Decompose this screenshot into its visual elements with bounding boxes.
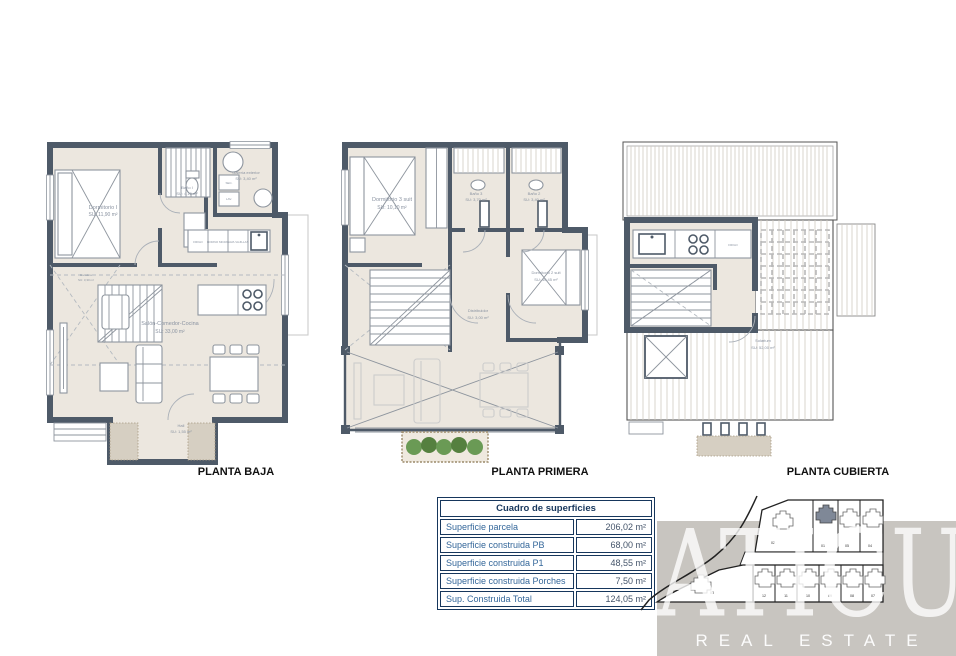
room-solarium-area: SU: 52,00 m²: [751, 345, 775, 350]
tv-unit-icon: [60, 323, 67, 393]
kitchen-counter: FRIGO HORNO MICRO LAVA VAJILLAS: [188, 230, 270, 252]
brand-watermark: ATICÚ REAL ESTATE: [657, 521, 956, 656]
roof-area: [623, 142, 837, 220]
pergola-posts: [629, 422, 771, 456]
title-planta-primera: PLANTA PRIMERA: [460, 466, 620, 478]
room-solarium-name: Solarium: [755, 338, 771, 343]
floorplan-planta-cubierta: FRIGO Solarium SU: 52,00 m²: [615, 138, 895, 458]
table-row-label: Superficie construida P1: [440, 555, 574, 571]
side-terrace: [837, 224, 875, 316]
table-row-label: Superficie parcela: [440, 519, 574, 535]
label-lav: LAV.: [226, 197, 232, 201]
door-panel: [538, 201, 547, 227]
room-bano2-name: Baño 2: [528, 191, 541, 196]
kitchen-island: [198, 285, 266, 315]
label-horno: HORNO MICRO: [207, 240, 230, 244]
closet-icon: [426, 148, 447, 228]
room-escalera-area: SU: 3,30 m²: [78, 278, 94, 282]
room-escalera-name: Escalera: [80, 273, 92, 277]
table-row-label: Superficie construida Porches: [440, 573, 574, 589]
armchair-icon: [102, 295, 129, 329]
room-dormitorio3-name: Dormitorio 3 suit: [372, 197, 413, 203]
room-bano3-name: Baño 3: [470, 191, 483, 196]
room-distribuidor-area: SU: 3,00 m²: [467, 315, 489, 320]
room-galeria-name: Galería exterior: [232, 170, 260, 175]
door-panel: [480, 201, 489, 227]
room-galeria-area: SU: 3,40 m²: [235, 176, 257, 181]
table-row-label: Superficie construida PB: [440, 537, 574, 553]
room-dormitorio2-name: Dormitorio 2 suit: [531, 270, 561, 275]
room-bano1-name: Baño I: [181, 185, 193, 190]
room-distribuidor-name: Distribuidor: [468, 308, 489, 313]
kitchen-counter: FRIGO: [633, 230, 751, 258]
room-dormitorio1-name: Dormitorio I: [89, 205, 118, 211]
room-bano3-area: SU: 3,70 m²: [465, 197, 487, 202]
dining-set-icon: [210, 345, 259, 403]
floorplan-planta-primera: Dormitorio 3 suit SU: 10,10 m² Baño 3 SU…: [330, 135, 605, 465]
floorplan-planta-baja: SEC. LAV. FRIGO HORNO MICRO LAVA VAJILLA…: [40, 135, 315, 470]
stairs-icon: [631, 270, 711, 326]
label-sec: SEC.: [225, 181, 232, 185]
table-row-label: Sup. Construida Total: [440, 591, 574, 607]
room-bano1-area: SU: 4,10 m²: [176, 191, 198, 196]
planter-icon: [402, 432, 488, 462]
sofa-icon: [136, 345, 162, 403]
room-bano2-area: SU: 3,40 m²: [523, 197, 545, 202]
label-lavavajillas: LAVA VAJILLAS: [227, 240, 248, 244]
room-salon-area: SU: 33,00 m²: [155, 329, 185, 335]
room-dormitorio2-area: SU: 10,45 m²: [534, 277, 558, 282]
label-frigo: FRIGO: [728, 243, 738, 247]
brand-logo-text: ATICÚ: [657, 521, 956, 644]
room-dormitorio1-area: SU: 11,90 m²: [88, 212, 117, 218]
room-hall-area: SU: 1,55 m²: [170, 429, 192, 434]
brand-tagline: REAL ESTATE: [657, 631, 956, 651]
title-planta-baja: PLANTA BAJA: [156, 466, 316, 478]
title-planta-cubierta: PLANTA CUBIERTA: [758, 466, 918, 478]
skylight-icon: [645, 336, 687, 378]
label-frigo: FRIGO: [193, 240, 203, 244]
room-hall-name: Hall: [178, 423, 185, 428]
room-dormitorio3-area: SU: 10,10 m²: [377, 205, 407, 211]
room-salon-name: Salón-Comedor-Cocina: [141, 321, 199, 327]
side-table-icon: [100, 363, 128, 391]
